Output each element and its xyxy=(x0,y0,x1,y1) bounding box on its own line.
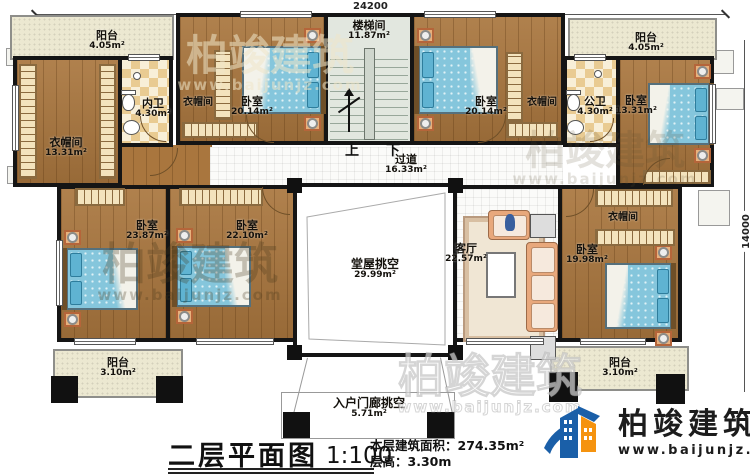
room-name: 衣帽间 xyxy=(608,212,638,223)
room-label-hall-void: 堂屋挑空 29.99m² xyxy=(330,258,420,281)
window xyxy=(128,54,160,61)
wardrobe xyxy=(75,188,125,206)
room-label-bedroom-tr: 卧室 20.14m² xyxy=(456,96,516,118)
floor-area-label: 本层建筑面积： xyxy=(370,438,458,453)
room-area: 23.87m² xyxy=(126,232,168,242)
floor-area-line: 本层建筑面积：274.35m² xyxy=(370,438,524,454)
room-area: 4.30m² xyxy=(577,108,613,118)
nightstand xyxy=(417,116,434,131)
toilet-tank xyxy=(121,90,136,95)
room-name: 衣帽间 xyxy=(183,97,213,108)
wardrobe xyxy=(506,122,558,138)
room-area: 4.30m² xyxy=(135,110,171,120)
exterior-platform xyxy=(716,88,744,110)
plan-annotations: 本层建筑面积：274.35m² 层高：3.30m xyxy=(370,438,524,469)
person-figure xyxy=(505,214,515,231)
room-area: 22.10m² xyxy=(226,232,268,242)
room-label-balcony-bl: 阳台 3.10m² xyxy=(88,357,148,379)
room-area: 3.10m² xyxy=(602,369,638,379)
bed xyxy=(66,248,138,310)
bed xyxy=(176,246,251,307)
wall-pier xyxy=(287,178,302,193)
nightstand xyxy=(694,64,711,79)
room-label-cloakroom-l: 衣帽间 13.31m² xyxy=(36,137,96,159)
window xyxy=(574,54,606,61)
brand-text: 柏竣建筑 www.baijunjz.com xyxy=(618,410,750,458)
room-area: 13.31m² xyxy=(45,149,87,159)
stair-down-label: 下 xyxy=(386,140,400,160)
wall-pier xyxy=(287,345,302,360)
room-label-stairwell: 楼梯间 11.87m² xyxy=(336,20,402,42)
room-area: 4.05m² xyxy=(628,44,664,54)
balcony-door xyxy=(466,338,544,345)
room-name: 衣帽间 xyxy=(527,97,557,108)
title-underline xyxy=(168,468,374,470)
window xyxy=(240,11,312,18)
nightstand xyxy=(176,309,193,324)
room-area: 13.31m² xyxy=(615,107,657,117)
dimension-width-label: 24200 xyxy=(350,1,391,12)
room-label-balcony-tl: 阳台 4.05m² xyxy=(75,30,139,52)
balcony-column xyxy=(656,374,685,404)
balcony-column xyxy=(549,372,578,402)
room-area: 4.05m² xyxy=(89,42,125,52)
floor-height-value: 3.30m xyxy=(408,454,452,469)
toilet-tank xyxy=(566,90,581,95)
room-area: 5.71m² xyxy=(351,410,387,420)
room-label-bedroom-r: 卧室 13.31m² xyxy=(610,95,662,117)
floor-height-line: 层高：3.30m xyxy=(370,454,524,470)
brand-name: 柏竣建筑 xyxy=(618,410,750,440)
wall-pier xyxy=(448,345,463,360)
room-label-closet-br: 衣帽间 xyxy=(600,212,646,223)
nightstand xyxy=(304,116,321,131)
stair-up-label: 上 xyxy=(345,140,359,160)
wardrobe xyxy=(595,189,673,207)
sink xyxy=(567,120,584,135)
room-area: 20.14m² xyxy=(465,108,507,118)
window xyxy=(12,85,19,151)
brand-site: www.baijunjz.com xyxy=(618,443,750,458)
sink xyxy=(123,120,140,135)
bed xyxy=(605,263,672,329)
balcony-door xyxy=(196,338,274,345)
balcony-column xyxy=(156,376,183,403)
room-label-bedroom-l1: 卧室 23.87m² xyxy=(116,220,178,242)
brand-logo-icon xyxy=(538,404,612,464)
room-label-balcony-br: 阳台 3.10m² xyxy=(590,357,650,379)
room-area: 19.98m² xyxy=(566,256,608,266)
room-area: 22.57m² xyxy=(445,255,487,265)
room-label-bedroom-l2: 卧室 22.10m² xyxy=(216,220,278,242)
nightstand xyxy=(304,28,321,43)
room-area: 29.99m² xyxy=(354,271,396,281)
nightstand xyxy=(655,245,672,260)
floor-plan: 24200 14000 xyxy=(0,0,750,476)
wardrobe xyxy=(99,64,116,179)
room-label-balcony-tr: 阳台 4.05m² xyxy=(614,32,678,54)
nightstand xyxy=(64,312,81,327)
brand-logo: 柏竣建筑 www.baijunjz.com xyxy=(538,404,750,464)
balcony-door xyxy=(74,338,136,345)
wardrobe xyxy=(179,188,263,206)
room-area: 3.10m² xyxy=(100,369,136,379)
nightstand xyxy=(176,228,193,243)
room-area: 20.14m² xyxy=(231,108,273,118)
wardrobe xyxy=(19,64,37,179)
nightstand xyxy=(417,28,434,43)
stair-direction-arrow xyxy=(348,90,350,132)
room-label-bedroom-tl: 卧室 20.14m² xyxy=(222,96,282,118)
balcony-column xyxy=(51,376,78,403)
wall-pier xyxy=(448,178,463,193)
window xyxy=(56,240,63,306)
room-label-bedroom-br: 卧室 19.98m² xyxy=(556,244,618,266)
exterior-platform xyxy=(698,190,730,226)
room-area: 11.87m² xyxy=(348,32,390,42)
nightstand xyxy=(655,331,672,346)
room-label-porch: 入户门廊挑空 5.71m² xyxy=(306,397,432,420)
dimension-height-label: 14000 xyxy=(741,211,750,252)
shower-head xyxy=(133,72,141,80)
window xyxy=(424,11,496,18)
sofa xyxy=(526,242,558,332)
faucet xyxy=(594,70,602,78)
nightstand xyxy=(64,230,81,245)
side-table xyxy=(530,214,556,238)
room-area: 16.33m² xyxy=(385,166,427,176)
floor-area-value: 274.35m² xyxy=(458,438,525,453)
balcony-door xyxy=(580,338,646,345)
room-label-closet-tl: 衣帽间 xyxy=(178,97,218,108)
title-block: 二层平面图1:100 xyxy=(168,434,392,473)
room-label-inner-bath: 内卫 4.30m² xyxy=(128,98,178,120)
floor-height-label: 层高： xyxy=(370,454,408,469)
stair-stringer xyxy=(364,48,375,140)
title-underline xyxy=(168,472,374,474)
room-label-living: 客厅 22.57m² xyxy=(436,243,496,265)
room-label-closet-tr: 衣帽间 xyxy=(522,97,562,108)
wardrobe xyxy=(182,122,258,138)
nightstand xyxy=(694,148,711,163)
window xyxy=(709,84,716,144)
